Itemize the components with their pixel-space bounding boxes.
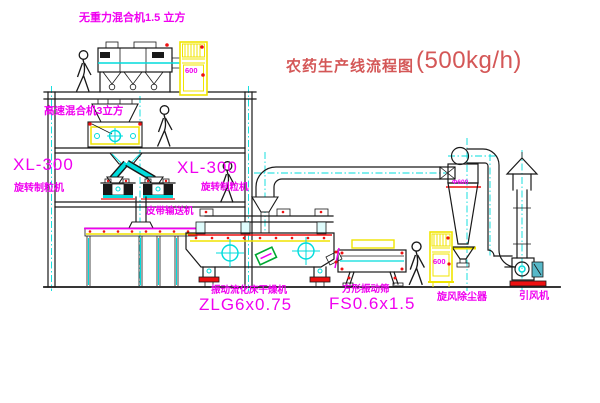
person-figure-ground bbox=[409, 242, 424, 285]
dryer-nameplate bbox=[256, 247, 277, 265]
feed-funnel-y-duct bbox=[107, 153, 163, 183]
fan-label: 引风机 bbox=[519, 292, 549, 302]
screen-model: FS0.6x1.5 bbox=[329, 295, 416, 312]
cabinet-top-text: 600 bbox=[185, 67, 198, 75]
granulator-left-model: XL-300 bbox=[13, 156, 74, 173]
diagram-title-text: 农药生产线流程图 bbox=[286, 55, 414, 76]
fluid-bed-dryer bbox=[186, 209, 334, 287]
induced-draft-fan bbox=[510, 258, 546, 286]
dryer-model: ZLG6x0.75 bbox=[199, 296, 292, 313]
diagram-title: 农药生产线流程图 (500kg/h) bbox=[286, 47, 522, 76]
granulator-right-label: 旋转制粒机 bbox=[201, 183, 249, 193]
person-figure-floor2 bbox=[158, 106, 173, 147]
granulator-left-label: 旋转制粒机 bbox=[14, 184, 64, 194]
flow-diagram-canvas: 农药生产线流程图 (500kg/h) 无重力混合机1.5 立方 高速混合机3立方… bbox=[0, 0, 600, 403]
diagram-title-capacity: (500kg/h) bbox=[416, 47, 522, 75]
exhaust-duct-main bbox=[252, 167, 440, 233]
person-figure-roof bbox=[77, 51, 92, 92]
cyclone-size-label: Φ600 bbox=[452, 180, 468, 187]
cabinet-right-text: 600 bbox=[433, 258, 446, 266]
cyclone-label: 旋风除尘器 bbox=[437, 293, 487, 303]
vibrating-screen bbox=[326, 240, 406, 286]
high-speed-mixer-label: 高速混合机3立方 bbox=[44, 106, 123, 117]
granulator-right-model: XL-300 bbox=[177, 159, 238, 176]
gravity-mixer-label: 无重力混合机1.5 立方 bbox=[79, 13, 185, 24]
belt-conveyor-label: 皮带输送机 bbox=[146, 207, 194, 217]
belt-conveyor bbox=[84, 228, 198, 286]
